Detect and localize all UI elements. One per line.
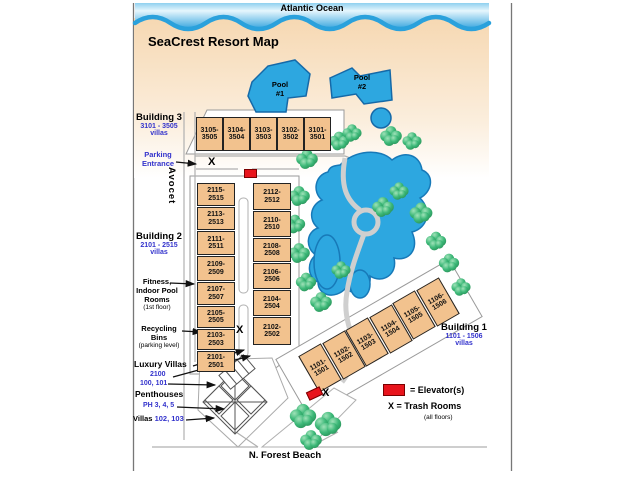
unit-number: 2101-	[207, 354, 225, 362]
villas-units: 102, 103	[155, 414, 184, 423]
trash-room-x: X	[236, 324, 243, 336]
villas-label: Villas 102, 103	[133, 415, 184, 423]
unit-number: 3502	[283, 134, 299, 142]
building2-unit: 2108- 2508	[253, 238, 291, 262]
unit-number: 2106-	[263, 269, 281, 277]
unit-number: 2502	[264, 331, 280, 339]
parking-entrance-label: Parking Entrance	[136, 150, 180, 168]
fitness-label: Fitness, Indoor Pool Rooms (1st floor)	[128, 277, 186, 311]
building2-unit: 2111- 2511	[197, 231, 235, 255]
ocean-label: Atlantic Ocean	[135, 3, 489, 13]
spa-circle	[371, 108, 391, 128]
building1-name: Building 1	[434, 322, 494, 333]
trash-room-x: X	[208, 156, 215, 168]
building3-unit: 3104- 3504	[223, 117, 250, 151]
unit-number: 2501	[208, 362, 224, 370]
unit-number: 3504	[229, 134, 245, 142]
unit-number: 3505	[202, 134, 218, 142]
building3-villas: villas	[132, 130, 186, 137]
page-title: SeaCrest Resort Map	[148, 35, 279, 50]
unit-number: 2104-	[263, 296, 281, 304]
recycling-line2: Bins	[130, 333, 188, 342]
map-artwork	[0, 0, 622, 481]
recycling-line1: Recycling	[130, 324, 188, 333]
building3-unit: 3101- 3501	[304, 117, 331, 151]
building2-unit: 2105- 2505	[197, 306, 235, 328]
unit-number: 2507	[208, 294, 224, 302]
fitness-line3: Rooms	[128, 295, 186, 304]
pool1-label: Pool #1	[258, 81, 302, 98]
building2-unit: 2112- 2512	[253, 183, 291, 210]
luxury-villas-units2: 100, 101	[140, 380, 167, 388]
unit-number: 3104-	[228, 127, 246, 135]
fitness-line4: (1st floor)	[128, 304, 186, 311]
unit-number: 2508	[264, 250, 280, 258]
building2-unit: 2115- 2515	[197, 183, 235, 206]
legend-trash-text: X = Trash Rooms	[388, 401, 461, 411]
building2-unit: 2109- 2509	[197, 256, 235, 281]
unit-number: 3501	[310, 134, 326, 142]
median-strip	[239, 198, 248, 293]
building2-unit: 2104- 2504	[253, 290, 291, 316]
unit-number: 3103-	[255, 127, 273, 135]
lagoon	[308, 152, 430, 298]
pool2-label: Pool #2	[340, 74, 384, 91]
building2-range: 2101 - 2515	[132, 242, 186, 249]
unit-number: 3105-	[201, 127, 219, 135]
penthouses-label: Penthouses	[135, 390, 183, 400]
building2-unit: 2102- 2502	[253, 317, 291, 345]
building2-unit: 2113- 2513	[197, 207, 235, 230]
building3-unit: 3105- 3505	[196, 117, 223, 151]
unit-number: 2504	[264, 303, 280, 311]
fitness-line2: Indoor Pool	[128, 286, 186, 295]
luxury-villas-label: Luxury Villas	[134, 360, 187, 370]
building2-label: Building 2 2101 - 2515 villas	[132, 231, 186, 256]
unit-number: 2505	[208, 317, 224, 325]
building2-unit: 2103- 2503	[197, 329, 235, 350]
building1-villas: villas	[434, 340, 494, 347]
building2-unit: 2101- 2501	[197, 351, 235, 372]
villas-name: Villas	[133, 414, 152, 423]
parking-line1: Parking	[136, 150, 180, 159]
unit-number: 2115-	[207, 187, 225, 195]
unit-number: 3503	[256, 134, 272, 142]
unit-number: 2509	[208, 269, 224, 277]
unit-number: 2107-	[207, 286, 225, 294]
street-avocet: Avocet	[166, 167, 177, 204]
unit-number: 2503	[208, 340, 224, 348]
unit-number: 2109-	[207, 261, 225, 269]
unit-number: 2105-	[207, 310, 225, 318]
recycling-label: Recycling Bins (parking level)	[130, 324, 188, 349]
street-n-forest-beach: N. Forest Beach	[220, 451, 350, 462]
building2-name: Building 2	[132, 231, 186, 242]
unit-number: 3102-	[282, 127, 300, 135]
unit-number: 2108-	[263, 243, 281, 251]
building3-range: 3101 - 3505	[132, 123, 186, 130]
building3-unit: 3102- 3502	[277, 117, 304, 151]
unit-number: 2510	[264, 224, 280, 232]
unit-number: 2103-	[207, 332, 225, 340]
unit-number: 3101-	[309, 127, 327, 135]
resort-map: Atlantic Ocean SeaCrest Resort Map Pool …	[0, 0, 622, 481]
building3-name: Building 3	[132, 112, 186, 123]
unit-number: 2515	[208, 195, 224, 203]
penthouses-units: PH 3, 4, 5	[143, 402, 174, 410]
pool1-line2: #1	[258, 90, 302, 99]
trash-room-x: X	[322, 387, 329, 399]
unit-number: 2512	[264, 197, 280, 205]
building2-unit: 2107- 2507	[197, 282, 235, 305]
elevator-marker	[244, 169, 257, 178]
recycling-line3: (parking level)	[130, 342, 188, 349]
unit-number: 2513	[208, 219, 224, 227]
unit-number: 2511	[208, 243, 223, 251]
unit-number: 2102-	[263, 324, 281, 332]
legend-elevator-swatch	[383, 384, 405, 396]
building2-unit: 2106- 2506	[253, 263, 291, 289]
building3-label: Building 3 3101 - 3505 villas	[132, 112, 186, 137]
building1-label: Building 1 1101 - 1506 villas	[434, 322, 494, 347]
building3-unit: 3103- 3503	[250, 117, 277, 151]
unit-number: 2113-	[207, 211, 225, 219]
unit-number: 2111-	[207, 236, 224, 244]
pool2-line2: #2	[340, 83, 384, 92]
building1-range: 1101 - 1506	[434, 333, 494, 340]
legend-trash-sub: (all floors)	[424, 414, 453, 421]
unit-number: 2110-	[263, 217, 281, 225]
legend-elevator-text: = Elevator(s)	[410, 385, 464, 395]
unit-number: 2506	[264, 276, 280, 284]
luxury-villas-unit: 2100	[150, 371, 166, 379]
building2-villas: villas	[132, 249, 186, 256]
building2-unit: 2110- 2510	[253, 211, 291, 237]
unit-number: 2112-	[263, 189, 281, 197]
fitness-line1: Fitness,	[128, 277, 186, 286]
